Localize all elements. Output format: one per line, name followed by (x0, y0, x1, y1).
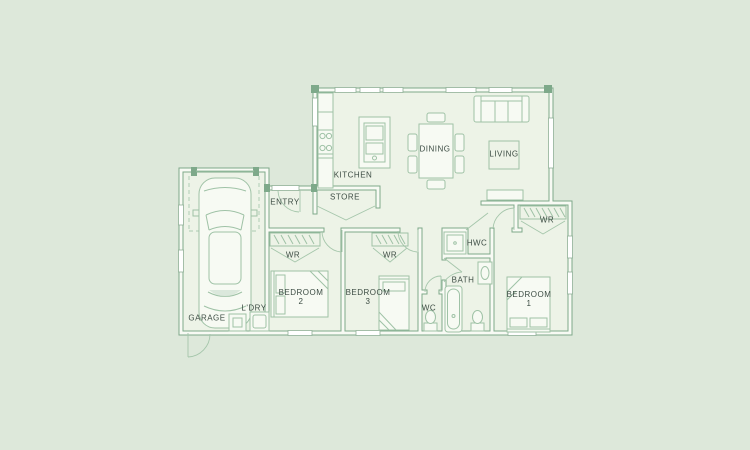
bedroom3-number: 3 (346, 297, 391, 306)
room-label-wr-bedroom2: WR (286, 251, 300, 260)
floor-plan-drawing (0, 0, 750, 450)
bedroom2-number: 2 (279, 297, 324, 306)
room-label-bedroom1: BEDROOM 1 (507, 290, 552, 308)
room-label-bath: BATH (452, 276, 475, 285)
room-label-kitchen: KITCHEN (334, 171, 373, 180)
television-unit-icon (487, 190, 523, 200)
room-label-bedroom2: BEDROOM 2 (279, 288, 324, 306)
room-label-store: STORE (330, 193, 360, 202)
sofa-icon (474, 96, 529, 122)
bedroom1-name: BEDROOM (507, 290, 552, 299)
floor-plan: GARAGE L'DRY ENTRY KITCHEN STORE DINING … (0, 0, 750, 450)
bathtub-icon (445, 286, 462, 332)
room-label-laundry: L'DRY (241, 304, 266, 313)
room-label-entry: ENTRY (270, 198, 299, 207)
bedroom2-name: BEDROOM (279, 288, 324, 297)
bedroom3-name: BEDROOM (346, 288, 391, 297)
room-label-living: LIVING (489, 150, 518, 159)
kitchen-island-icon (359, 117, 390, 168)
kitchen-counter-icon (318, 93, 333, 188)
toilet-bath-icon (471, 311, 484, 332)
room-label-bedroom3: BEDROOM 3 (346, 288, 391, 306)
room-label-wc: WC (422, 304, 436, 313)
toilet-wc-icon (424, 311, 437, 332)
room-label-dining: DINING (420, 145, 451, 154)
vanity-basin-icon (478, 262, 492, 284)
room-label-wr-bedroom3: WR (383, 251, 397, 260)
room-label-wr-bedroom1: WR (540, 216, 554, 225)
room-label-hwc: HWC (467, 239, 488, 248)
bedroom1-number: 1 (507, 299, 552, 308)
shower-icon (444, 232, 466, 254)
room-label-garage: GARAGE (188, 314, 225, 323)
